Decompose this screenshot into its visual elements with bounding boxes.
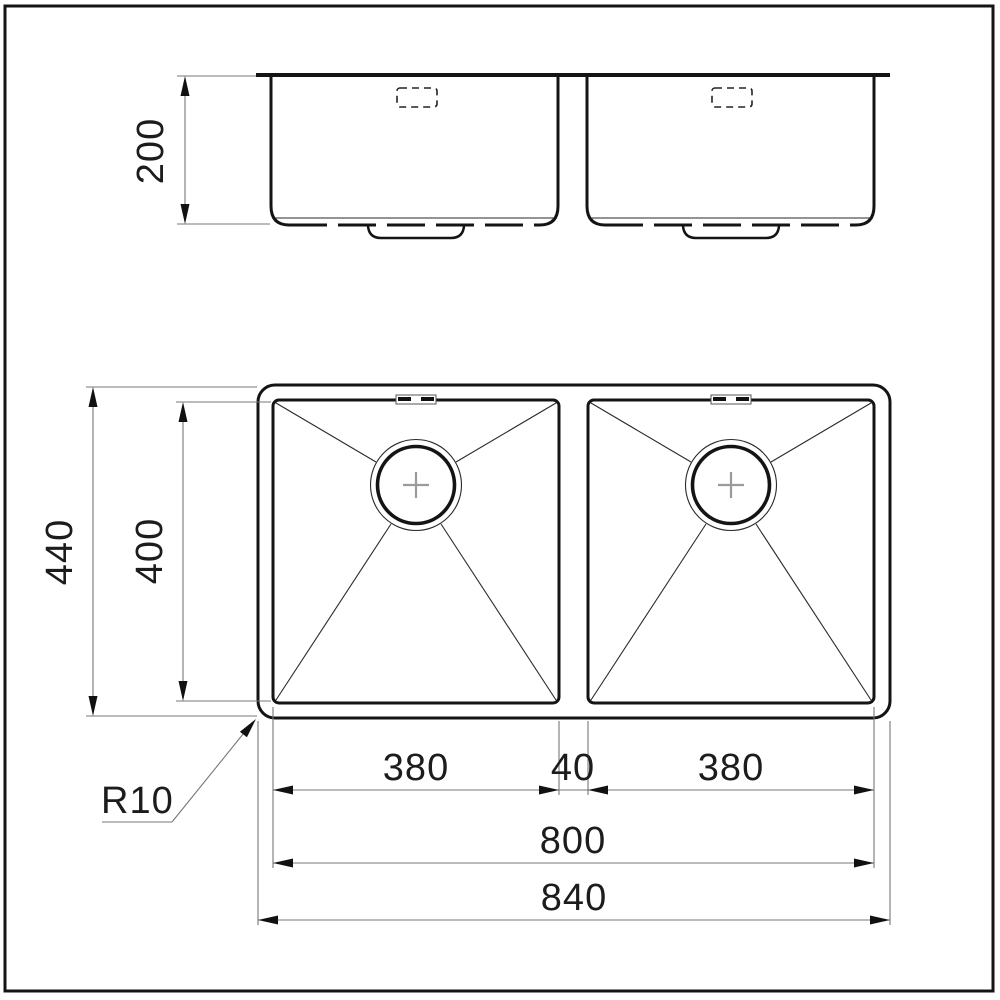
plan-right-overflow-icon [711, 395, 751, 404]
drawing-canvas: 200 [0, 0, 1000, 1000]
dim-40-label: 40 [551, 747, 595, 789]
dim-380-right-label: 380 [698, 747, 764, 789]
dim-840-label: 840 [541, 877, 607, 919]
dim-380-left-label: 380 [383, 747, 449, 789]
dim-depth-label: 200 [130, 118, 172, 184]
dim-400-label: 400 [129, 518, 171, 584]
plan-left-overflow-icon [396, 395, 436, 404]
dim-800-label: 800 [540, 820, 606, 862]
dim-r10-label: R10 [101, 780, 174, 822]
dim-440-label: 440 [39, 519, 81, 585]
sink-technical-drawing: 200 [0, 0, 1000, 1000]
